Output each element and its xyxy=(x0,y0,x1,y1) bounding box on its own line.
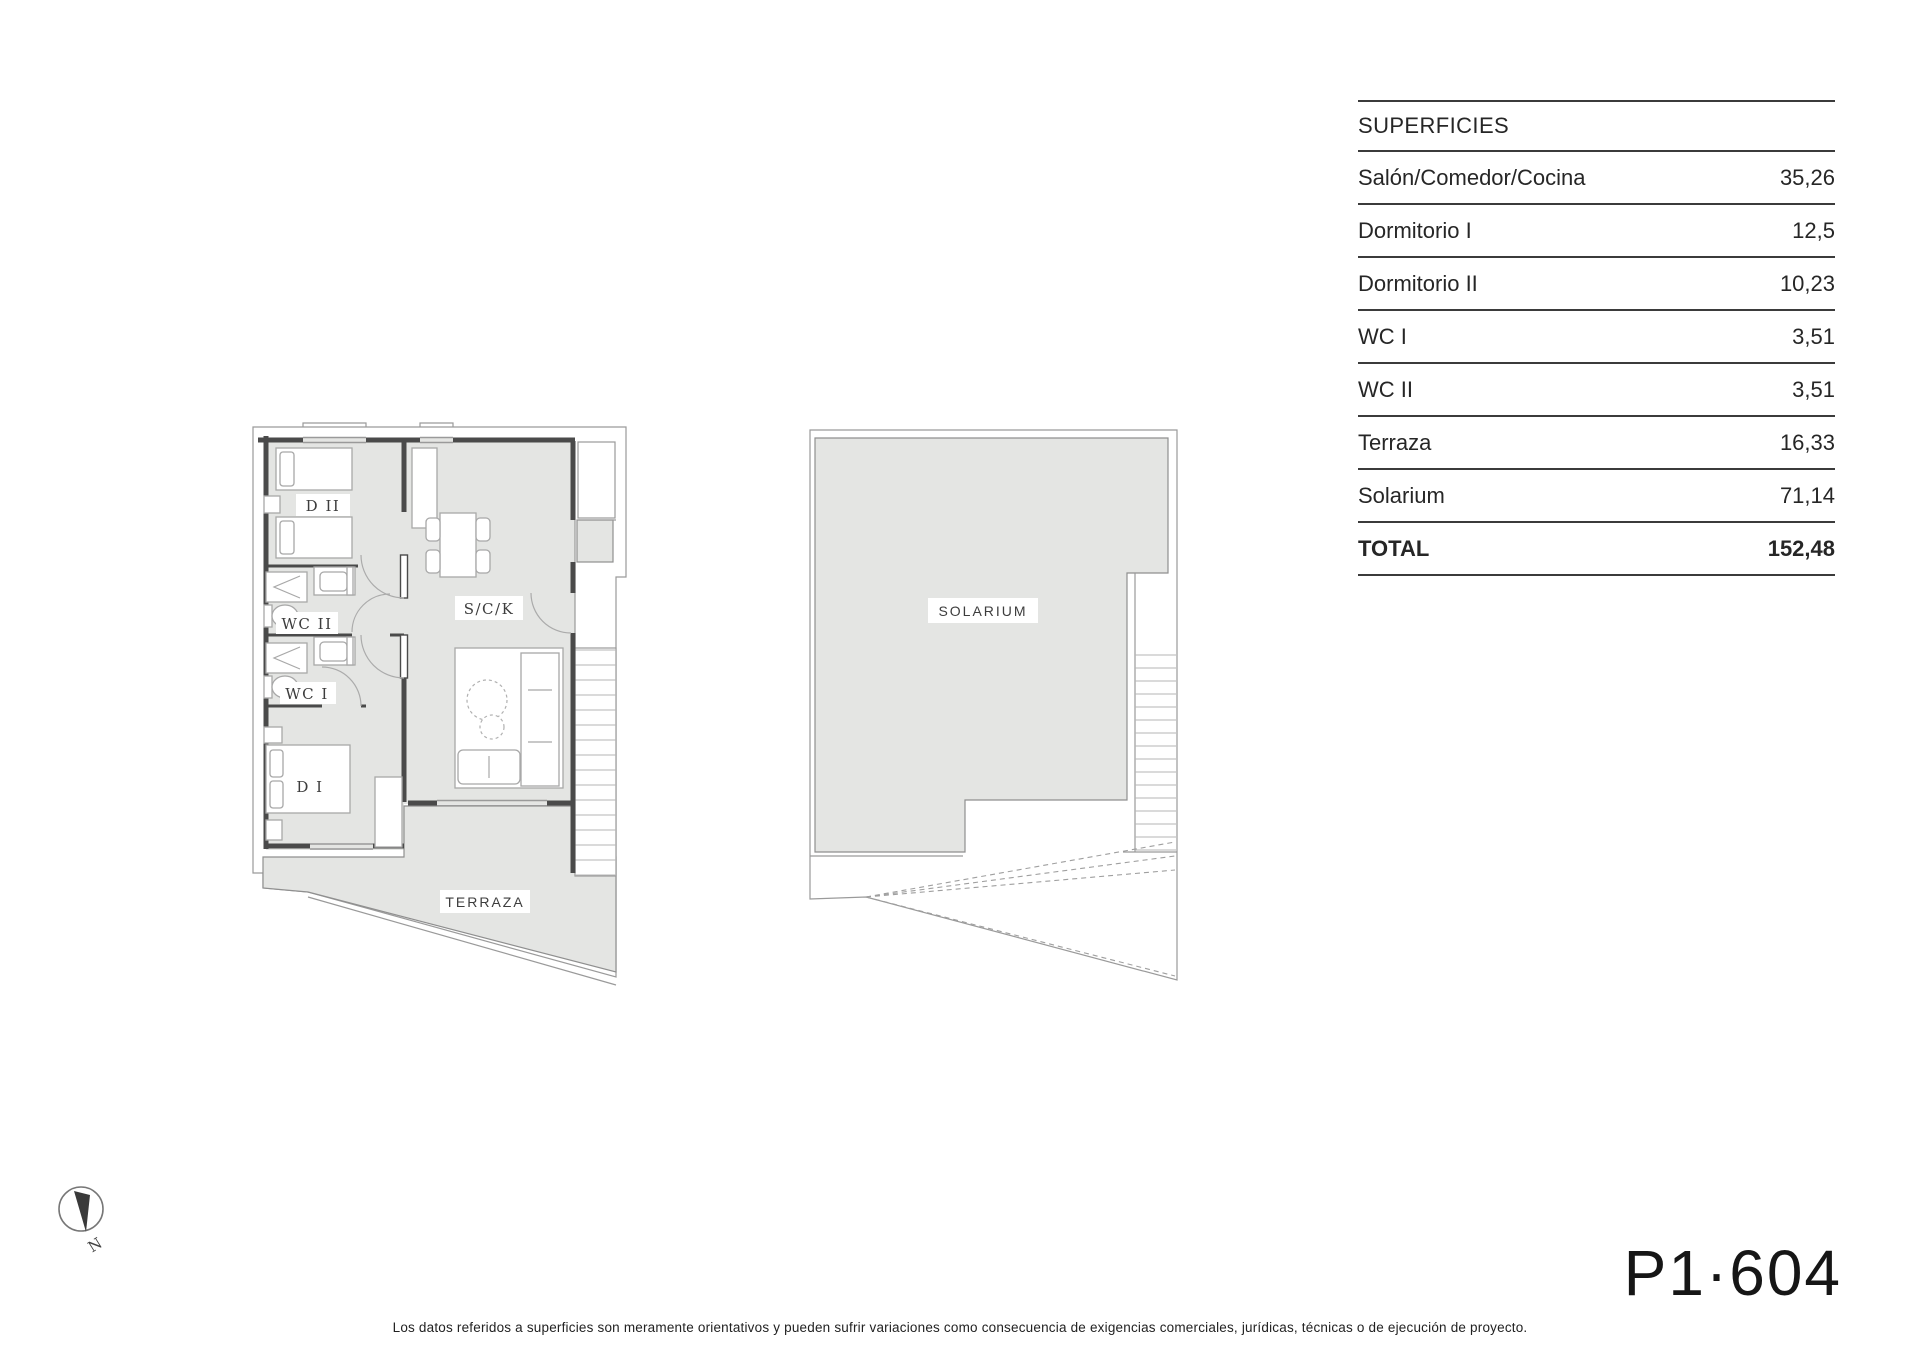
unit-code: P1·604 xyxy=(1624,1236,1842,1310)
surfaces-table-title: SUPERFICIES xyxy=(1358,113,1509,139)
table-row: Solarium 71,14 xyxy=(1358,470,1835,523)
total-label: TOTAL xyxy=(1358,536,1429,562)
table-row: Terraza 16,33 xyxy=(1358,417,1835,470)
table-row: WC I 3,51 xyxy=(1358,311,1835,364)
row-value: 16,33 xyxy=(1780,430,1835,456)
entry-landing xyxy=(578,442,615,518)
table-row: Salón/Comedor/Cocina 35,26 xyxy=(1358,152,1835,205)
row-label: Dormitorio II xyxy=(1358,271,1478,297)
row-value: 3,51 xyxy=(1792,324,1835,350)
total-value: 152,48 xyxy=(1768,536,1835,562)
compass-north-label: N xyxy=(85,1234,106,1256)
row-label: Dormitorio I xyxy=(1358,218,1472,244)
room-label-wc2: WC II xyxy=(281,615,332,633)
solarium-floor-plan: SOLARIUM xyxy=(810,430,1177,980)
surfaces-table: SUPERFICIES Salón/Comedor/Cocina 35,26 D… xyxy=(1358,100,1835,576)
entry-floor xyxy=(577,520,613,562)
row-value: 71,14 xyxy=(1780,483,1835,509)
table-row: Dormitorio II 10,23 xyxy=(1358,258,1835,311)
solarium-floor xyxy=(815,438,1168,852)
north-compass: N xyxy=(59,1187,105,1256)
row-value: 10,23 xyxy=(1780,271,1835,297)
roof-slope-lines xyxy=(866,842,1175,976)
row-label: Terraza xyxy=(1358,430,1431,456)
table-row-total: TOTAL 152,48 xyxy=(1358,523,1835,576)
north-arrow-icon xyxy=(74,1191,90,1232)
table-row: WC II 3,51 xyxy=(1358,364,1835,417)
row-value: 35,26 xyxy=(1780,165,1835,191)
room-label-d1: D I xyxy=(296,778,323,796)
row-label: WC I xyxy=(1358,324,1407,350)
row-label: Salón/Comedor/Cocina xyxy=(1358,165,1585,191)
room-label-d2: D II xyxy=(306,497,341,515)
row-value: 3,51 xyxy=(1792,377,1835,403)
room-label-wc1: WC I xyxy=(285,685,329,703)
table-row: Dormitorio I 12,5 xyxy=(1358,205,1835,258)
row-label: Solarium xyxy=(1358,483,1445,509)
apartment-floor-plan: D II WC II WC I D I S/C/K TERRAZA xyxy=(253,423,626,985)
solarium-stairs-treads xyxy=(1135,655,1176,850)
row-value: 12,5 xyxy=(1792,218,1835,244)
room-label-sck: S/C/K xyxy=(464,600,515,618)
room-label-terraza: TERRAZA xyxy=(445,894,524,910)
room-label-solarium: SOLARIUM xyxy=(938,603,1027,619)
disclaimer-text: Los datos referidos a superficies son me… xyxy=(0,1320,1920,1335)
surfaces-table-header: SUPERFICIES xyxy=(1358,102,1835,152)
row-label: WC II xyxy=(1358,377,1413,403)
stairs-well xyxy=(575,648,616,876)
